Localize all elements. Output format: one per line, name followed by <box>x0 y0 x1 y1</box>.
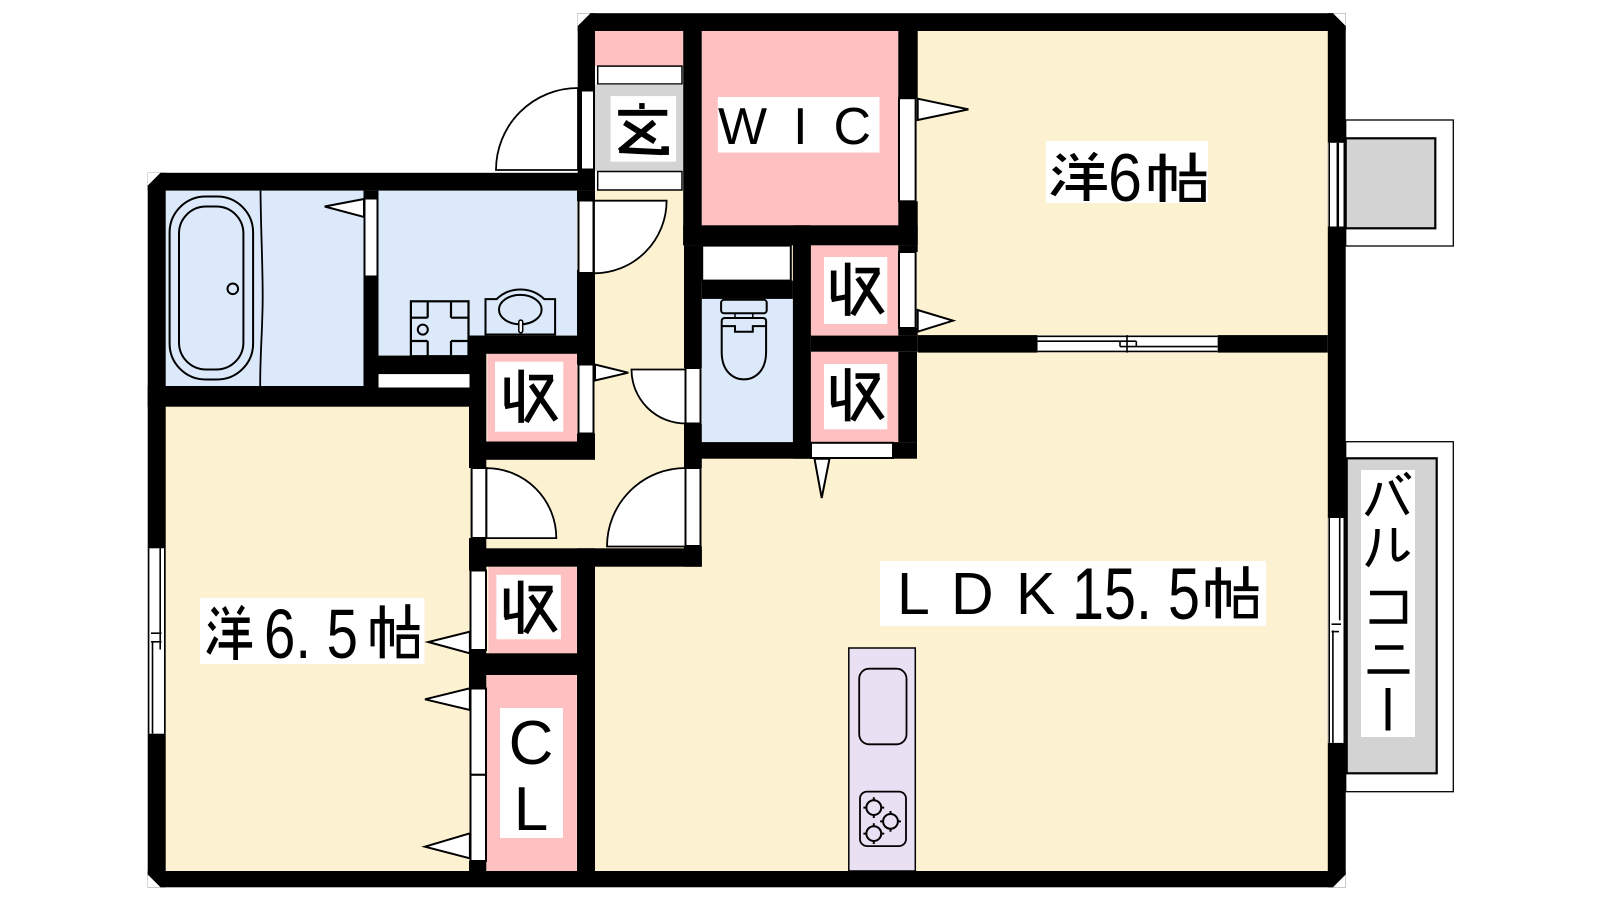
svg-text:WIC: WIC <box>718 98 897 156</box>
svg-text:6. 5: 6. 5 <box>264 595 358 673</box>
svg-text:D: D <box>951 561 994 627</box>
svg-text:K: K <box>1016 561 1055 627</box>
svg-text:C: C <box>509 709 554 778</box>
svg-text:6: 6 <box>1108 140 1142 216</box>
svg-text:15. 5: 15. 5 <box>1072 554 1200 635</box>
svg-text:L: L <box>514 775 548 844</box>
svg-text:L: L <box>897 561 930 627</box>
